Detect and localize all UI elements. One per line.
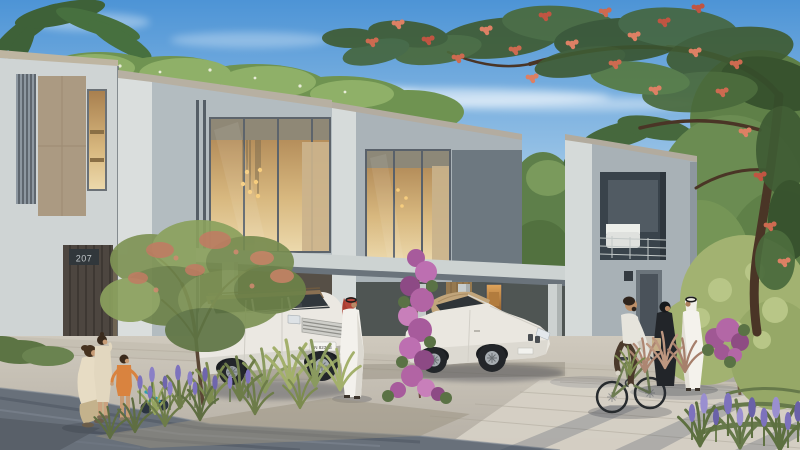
lit-window [366,150,450,262]
curtain [302,142,330,252]
license-plate [518,348,533,354]
street-scene: 207 [0,0,800,450]
house-number-sign: 207 [69,249,99,265]
unit-plaque [624,271,633,281]
lit-window [88,90,106,190]
suv-headlight [288,315,300,324]
house-number: 207 [76,254,93,264]
balcony-terrace [600,172,666,260]
